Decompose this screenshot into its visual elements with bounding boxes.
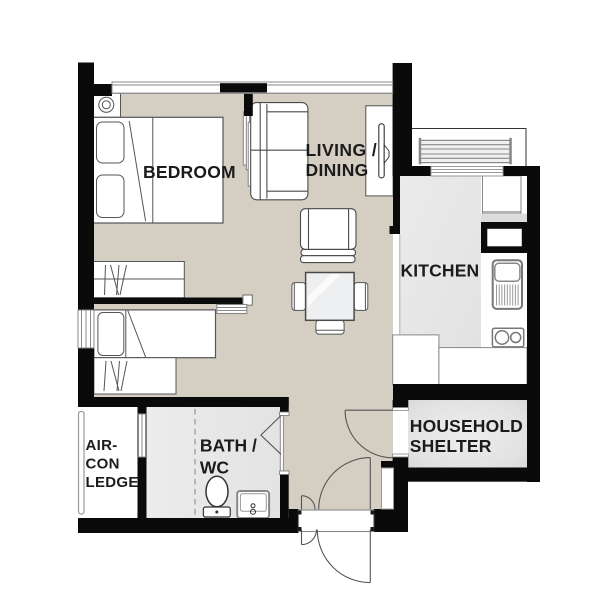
svg-text:LEDGE: LEDGE	[86, 474, 139, 491]
svg-text:DINING: DINING	[306, 160, 369, 180]
svg-text:KITCHEN: KITCHEN	[401, 261, 480, 281]
svg-text:LIVING /: LIVING /	[306, 140, 378, 160]
svg-text:WC: WC	[200, 458, 230, 478]
svg-text:AIR-: AIR-	[86, 437, 118, 454]
svg-text:SHELTER: SHELTER	[410, 436, 492, 456]
svg-text:BEDROOM: BEDROOM	[143, 162, 236, 182]
svg-text:CON: CON	[86, 455, 120, 472]
svg-text:BATH /: BATH /	[200, 435, 257, 455]
svg-text:HOUSEHOLD: HOUSEHOLD	[410, 416, 523, 436]
